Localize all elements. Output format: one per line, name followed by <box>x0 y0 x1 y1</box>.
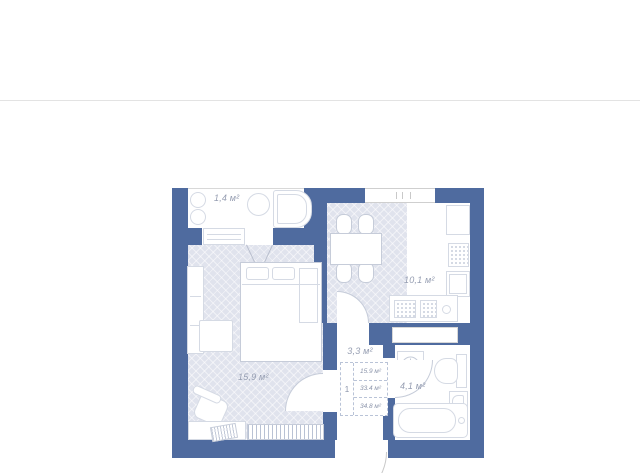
kitchen-window <box>365 188 435 203</box>
label-hallway-area: 3,3 м² <box>337 346 383 356</box>
area-stamp: 1 15.9 м² 33.4 м² 34.8 м² <box>340 362 388 416</box>
living-door-opening <box>323 370 337 412</box>
stamp-living-area: 15.9 м² <box>354 363 387 381</box>
dining-table <box>330 233 382 265</box>
wall-kitchen-top-right <box>435 188 470 203</box>
bathtub-icon <box>393 403 468 438</box>
label-bathroom-area: 4,1 м² <box>400 381 425 391</box>
stamp-rooms-count: 1 <box>341 363 354 415</box>
stool-icon <box>190 209 206 225</box>
fridge-icon <box>446 205 470 235</box>
floor-plan: 1,4 м² 10,1 м² 15,9 м² 3,3 м² 4,1 м² 1 1… <box>0 0 640 473</box>
wall-right <box>470 188 484 458</box>
chair-icon <box>336 262 352 283</box>
stool-icon <box>190 192 206 208</box>
bed <box>240 262 322 362</box>
label-storage-area: 1,4 м² <box>214 193 239 203</box>
page-divider <box>0 100 640 101</box>
chair-icon <box>336 214 352 235</box>
window-tick <box>402 192 403 199</box>
radiator <box>247 424 324 440</box>
sink-icon <box>247 193 270 216</box>
chair-icon <box>358 262 374 283</box>
window-tick <box>396 192 397 199</box>
ottoman <box>199 320 233 352</box>
wall-bottom-left <box>172 440 335 458</box>
kitchen-counter <box>389 295 458 322</box>
wall-left <box>172 188 188 458</box>
label-living-area: 15,9 м² <box>238 372 269 382</box>
wall-living-top-a <box>188 228 202 245</box>
label-kitchen-area: 10,1 м² <box>404 275 435 285</box>
toilet-icon <box>434 358 458 384</box>
wall-living-top-b <box>273 228 314 245</box>
storage-top-line <box>188 188 304 189</box>
wall-kitchen-top-left <box>327 188 365 203</box>
stove-icon <box>446 271 470 297</box>
stamp-area: 33.4 м² <box>354 381 387 399</box>
bathtub-inner <box>277 194 307 224</box>
kitchen-sink-icon <box>448 243 469 267</box>
duct-niche <box>392 327 458 343</box>
wardrobe-niche <box>203 228 245 245</box>
wall-bottom-right <box>388 440 484 458</box>
kitchen-door-opening <box>337 323 369 345</box>
entrance-door-arc <box>337 452 387 473</box>
stamp-total-area: 34.8 м² <box>354 398 387 415</box>
window-tick <box>410 192 411 199</box>
chair-icon <box>358 214 374 235</box>
